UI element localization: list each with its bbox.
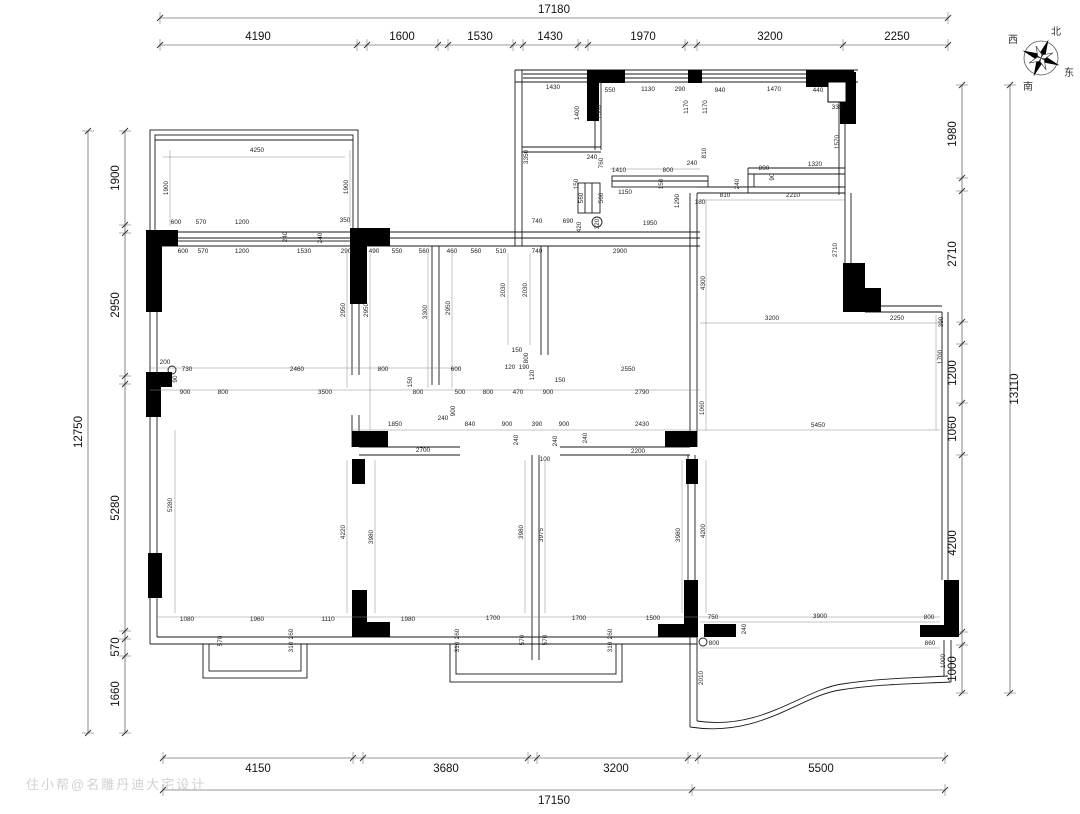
annotation-label: 1320 bbox=[808, 161, 823, 168]
annotation-label: 1360 bbox=[596, 104, 603, 119]
annotation-label: 2950 bbox=[363, 302, 370, 317]
annotation-label: 150 bbox=[512, 347, 523, 354]
annotation-label: 3975 bbox=[538, 527, 545, 542]
compass: 北 西 东 南 bbox=[1008, 26, 1074, 93]
annotation-label: 150 bbox=[658, 178, 665, 189]
annotation-label: 900 bbox=[502, 421, 513, 428]
corner-column-detail bbox=[828, 82, 846, 102]
annotation-label: 4300 bbox=[700, 275, 707, 290]
annotation-label: 2210 bbox=[786, 192, 801, 199]
annotation-label: 3900 bbox=[813, 613, 828, 620]
columns bbox=[146, 70, 959, 637]
annotation-label: 3980 bbox=[368, 529, 375, 544]
annotation-label: 840 bbox=[465, 421, 476, 428]
annotation-label: 120 bbox=[529, 369, 536, 380]
annotation-label: 180 bbox=[695, 199, 706, 206]
annotation-label: 560 bbox=[419, 248, 430, 255]
annotation-label: 1430 bbox=[546, 84, 561, 91]
dim-chain-left-total: 12750 bbox=[73, 128, 94, 736]
annotation-label: 470 bbox=[513, 389, 524, 396]
annotation-label: 750 bbox=[708, 614, 719, 621]
annotation-label: 570 bbox=[519, 634, 526, 645]
annotation-label: 1400 bbox=[574, 105, 581, 120]
annotation-label: 310 bbox=[288, 641, 295, 652]
dim-label: 1000 bbox=[947, 656, 959, 682]
dim-label: 1600 bbox=[389, 31, 415, 43]
dim-chain-right-total: 13110 bbox=[1004, 82, 1021, 696]
annotation-label: 310 bbox=[454, 641, 461, 652]
annotation-label: 240 bbox=[734, 178, 741, 189]
watermark: 住小帮@名雕丹迪大宅设计 bbox=[26, 774, 206, 793]
dim-label: 2710 bbox=[947, 241, 959, 267]
annotation-label: 1290 bbox=[674, 193, 681, 208]
annotation-label: 310 bbox=[607, 641, 614, 652]
annotation-label: 800 bbox=[709, 640, 720, 647]
dim-chain-left-segments: 1900295052805701660 bbox=[110, 128, 131, 736]
annotation-label: 810 bbox=[701, 147, 708, 158]
dim-label: 17150 bbox=[538, 795, 570, 807]
dim-label: 3200 bbox=[757, 31, 783, 43]
annotation-label: 760 bbox=[598, 157, 605, 168]
annotation-label: 3300 bbox=[422, 304, 429, 319]
annotation-label: 1530 bbox=[297, 248, 312, 255]
annotation-label: 500 bbox=[455, 389, 466, 396]
annotation-label: 4200 bbox=[700, 523, 707, 538]
dim-chain-top-segments: 4190160015301430197032002250 bbox=[157, 31, 951, 51]
annotation-label: 1110 bbox=[321, 616, 335, 623]
annotation-label: 330 bbox=[832, 104, 843, 111]
annotation-label: 4250 bbox=[250, 147, 265, 154]
dim-chain-bottom-segments: 4150368032005500 bbox=[160, 752, 948, 775]
dim-label: 5500 bbox=[808, 763, 834, 775]
annotation-label: 4220 bbox=[340, 524, 347, 539]
dim-label: 1430 bbox=[537, 31, 563, 43]
annotation-label: 1900 bbox=[343, 179, 350, 194]
dim-label: 2250 bbox=[884, 31, 910, 43]
annotation-label: 1700 bbox=[572, 615, 587, 622]
annotation-label: 900 bbox=[180, 389, 191, 396]
annotation-label: 1700 bbox=[937, 349, 944, 364]
annotation-label: 2010 bbox=[698, 670, 705, 685]
dim-label: 5280 bbox=[110, 495, 122, 521]
annotation-label: 810 bbox=[720, 192, 731, 199]
annotation-label: 2550 bbox=[621, 366, 636, 373]
annotation-label: 1900 bbox=[163, 180, 170, 195]
annotation-label: 460 bbox=[447, 248, 458, 255]
dim-chain-bottom-total: 17150 bbox=[160, 784, 948, 807]
annotation-label: 890 bbox=[759, 165, 770, 172]
annotation-label: 240 bbox=[552, 435, 559, 446]
annotation-label: 560 bbox=[471, 248, 482, 255]
annotation-label: 900 bbox=[543, 389, 554, 396]
annotation-label: 5450 bbox=[811, 422, 826, 429]
annotation-label: 1200 bbox=[235, 248, 250, 255]
annotation-label: 560 bbox=[578, 192, 585, 203]
annotation-label: 100 bbox=[540, 456, 551, 463]
annotation-label: 800 bbox=[378, 366, 389, 373]
annotation-label: 570 bbox=[217, 635, 224, 646]
annotation-label: 1470 bbox=[767, 86, 782, 93]
annotation-label: 600 bbox=[178, 248, 189, 255]
dim-label: 17180 bbox=[538, 4, 570, 16]
annotation-label: 800 bbox=[523, 352, 530, 363]
walls bbox=[150, 70, 951, 729]
dim-label: 1660 bbox=[110, 681, 122, 707]
annotation-label: 570 bbox=[198, 248, 209, 255]
dim-label: 1200 bbox=[947, 360, 959, 386]
annotation-label: 2030 bbox=[522, 282, 529, 297]
annotation-label: 600 bbox=[451, 366, 462, 373]
annotation-label: 1170 bbox=[702, 100, 709, 114]
annotation-label: 1150 bbox=[618, 189, 632, 196]
annotation-label: 800 bbox=[413, 389, 424, 396]
dim-label: 4150 bbox=[245, 763, 271, 775]
annotation-label: 800 bbox=[924, 614, 935, 621]
annotation-label: 420 bbox=[576, 221, 583, 232]
annotation-label: 1960 bbox=[250, 616, 265, 623]
dim-label: 3680 bbox=[433, 763, 459, 775]
dim-label: 1900 bbox=[110, 165, 122, 191]
annotation-label: 1130 bbox=[641, 86, 655, 93]
annotation-label: 3350 bbox=[523, 149, 530, 164]
annotation-label: 320 bbox=[594, 218, 601, 229]
annotation-label: 260 bbox=[454, 628, 461, 639]
interior-dim-lines bbox=[150, 150, 940, 648]
annotation-label: 1500 bbox=[646, 615, 661, 622]
annotation-label: 1170 bbox=[683, 100, 690, 114]
dim-label: 1530 bbox=[467, 31, 493, 43]
annotation-label: 240 bbox=[282, 231, 289, 242]
annotation-label: 350 bbox=[340, 217, 351, 224]
dim-label: 13110 bbox=[1009, 373, 1021, 404]
annotation-label: 2460 bbox=[290, 366, 305, 373]
dim-label: 12750 bbox=[73, 416, 85, 448]
annotation-label: 3500 bbox=[318, 389, 333, 396]
compass-west-label: 西 bbox=[1008, 35, 1018, 46]
annotation-label: 490 bbox=[369, 248, 380, 255]
annotation-label: 730 bbox=[182, 366, 193, 373]
annotation-label: 290 bbox=[675, 86, 686, 93]
dim-label: 570 bbox=[110, 637, 122, 656]
dim-label: 2950 bbox=[110, 292, 122, 318]
annotation-label: 2710 bbox=[832, 242, 839, 257]
annotation-label: 2200 bbox=[631, 448, 646, 455]
annotation-label: 940 bbox=[715, 87, 726, 94]
annotation-label: 1410 bbox=[612, 167, 627, 174]
annotation-label: 2430 bbox=[635, 421, 650, 428]
dim-label: 1980 bbox=[947, 121, 959, 147]
annotation-label: 240 bbox=[587, 154, 598, 161]
annotation-label: 2250 bbox=[890, 315, 905, 322]
annotation-label: 1950 bbox=[643, 220, 658, 227]
dim-label: 1060 bbox=[947, 416, 959, 442]
annotation-label: 2950 bbox=[340, 302, 347, 317]
annotation-label: 2900 bbox=[613, 248, 628, 255]
annotation-label: 690 bbox=[563, 218, 574, 225]
annotation-label: 290 bbox=[341, 248, 352, 255]
dim-chain-top-total: 17180 bbox=[157, 4, 951, 24]
annotation-label: 1000 bbox=[940, 653, 947, 668]
annotation-label: 1980 bbox=[401, 616, 416, 623]
annotation-label: 550 bbox=[392, 248, 403, 255]
annotation-label: 240 bbox=[582, 432, 589, 443]
annotation-label: 200 bbox=[160, 359, 171, 366]
annotation-label: 120 bbox=[505, 364, 516, 371]
annotation-label: 800 bbox=[663, 167, 674, 174]
dim-label: 1970 bbox=[630, 31, 656, 43]
annotation-label: 510 bbox=[496, 248, 507, 255]
annotation-label: 900 bbox=[450, 405, 457, 416]
floorplan-drawing: 北 西 东 南 17180419016001530143019703200225… bbox=[0, 0, 1080, 814]
annotation-label: 800 bbox=[483, 389, 494, 396]
annotation-label: 3200 bbox=[765, 315, 780, 322]
annotation-label: 260 bbox=[607, 628, 614, 639]
annotation-label: 390 bbox=[532, 421, 543, 428]
annotation-label: 1080 bbox=[180, 616, 195, 623]
annotation-label: 90 bbox=[172, 375, 179, 383]
annotation-label: 1700 bbox=[486, 615, 501, 622]
floorplan-page: 北 西 东 南 17180419016001530143019703200225… bbox=[0, 0, 1080, 814]
annotation-label: 2030 bbox=[500, 282, 507, 297]
compass-east-label: 东 bbox=[1064, 66, 1074, 79]
annotation-label: 550 bbox=[605, 87, 616, 94]
annotation-label: 740 bbox=[532, 218, 543, 225]
annotation-label: 390 bbox=[938, 316, 945, 327]
dim-label: 4190 bbox=[245, 31, 271, 43]
annotation-label: 740 bbox=[532, 248, 543, 255]
annotation-label: 600 bbox=[171, 219, 182, 226]
dim-label: 3200 bbox=[603, 763, 629, 775]
annotation-label: 240 bbox=[741, 623, 748, 634]
annotation-label: 1850 bbox=[388, 421, 403, 428]
annotation-label: 240 bbox=[317, 232, 324, 243]
dimension-chains: 1718041901600153014301970320022504150368… bbox=[73, 4, 1021, 807]
annotation-label: 2700 bbox=[416, 447, 431, 454]
annotation-label: 90 bbox=[769, 173, 776, 181]
annotation-label: 240 bbox=[438, 415, 449, 422]
annotation-label: 3980 bbox=[675, 527, 682, 542]
compass-south-label: 南 bbox=[1023, 80, 1033, 93]
dim-label: 4200 bbox=[947, 530, 959, 556]
annotation-label: 1060 bbox=[699, 400, 706, 415]
annotation-label: 3980 bbox=[518, 524, 525, 539]
annotation-label: 900 bbox=[559, 421, 570, 428]
compass-north-label: 北 bbox=[1051, 26, 1061, 38]
annotation-label: 560 bbox=[598, 192, 605, 203]
annotation-label: 570 bbox=[542, 634, 549, 645]
annotation-label: 2790 bbox=[635, 389, 650, 396]
annotation-label: 150 bbox=[573, 178, 580, 189]
annotation-label: 5280 bbox=[167, 497, 174, 512]
annotation-label: 1200 bbox=[235, 219, 250, 226]
annotation-label: 2950 bbox=[445, 300, 452, 315]
annotation-label: 860 bbox=[925, 640, 936, 647]
annotation-label: 150 bbox=[407, 376, 414, 387]
annotation-label: 150 bbox=[555, 377, 566, 384]
annotation-label: 240 bbox=[687, 160, 698, 167]
annotation-label: 800 bbox=[218, 389, 229, 396]
annotation-label: 570 bbox=[196, 219, 207, 226]
annotation-label: 260 bbox=[288, 628, 295, 639]
annotation-label: 440 bbox=[813, 87, 824, 94]
annotation-label: 240 bbox=[513, 434, 520, 445]
annotation-label: 1570 bbox=[834, 134, 841, 149]
